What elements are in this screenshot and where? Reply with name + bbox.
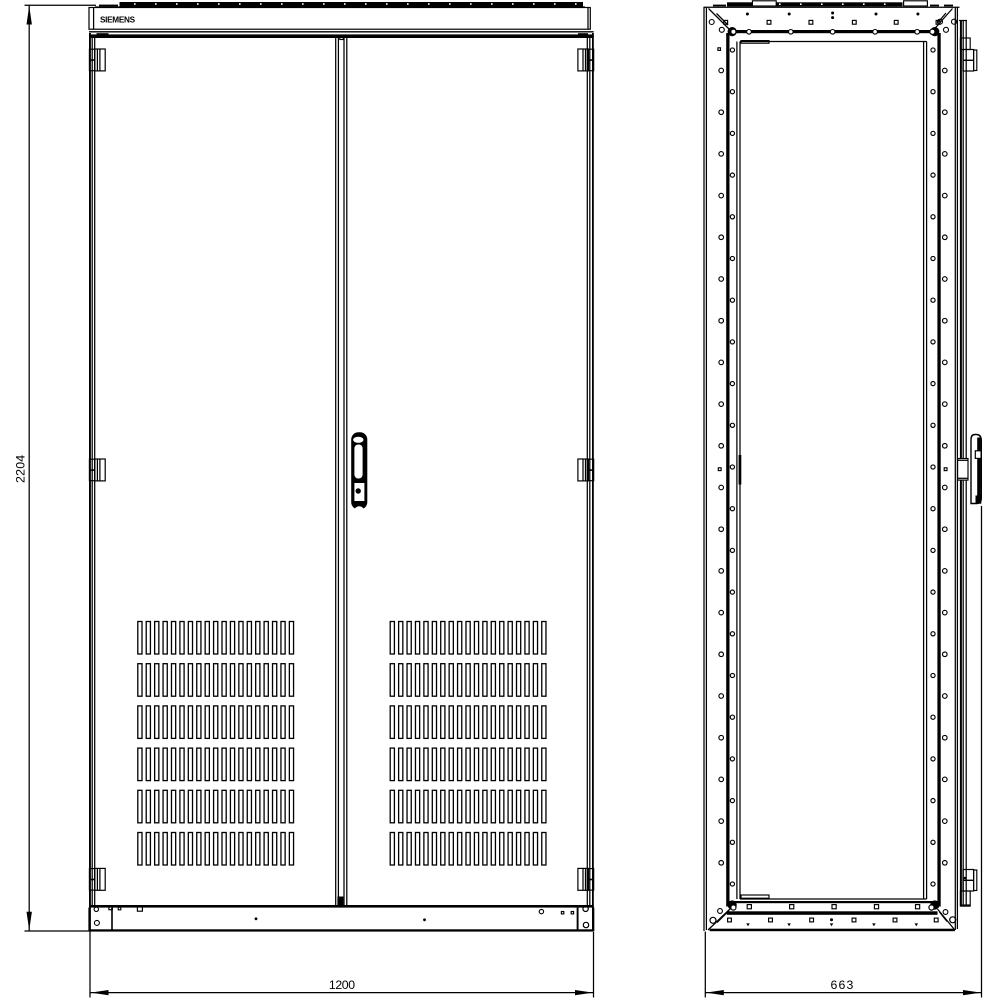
- svg-text:SIEMENS: SIEMENS: [100, 15, 136, 24]
- svg-text:2204: 2204: [14, 455, 28, 483]
- svg-text:1200: 1200: [329, 978, 355, 992]
- svg-text:663: 663: [830, 978, 854, 992]
